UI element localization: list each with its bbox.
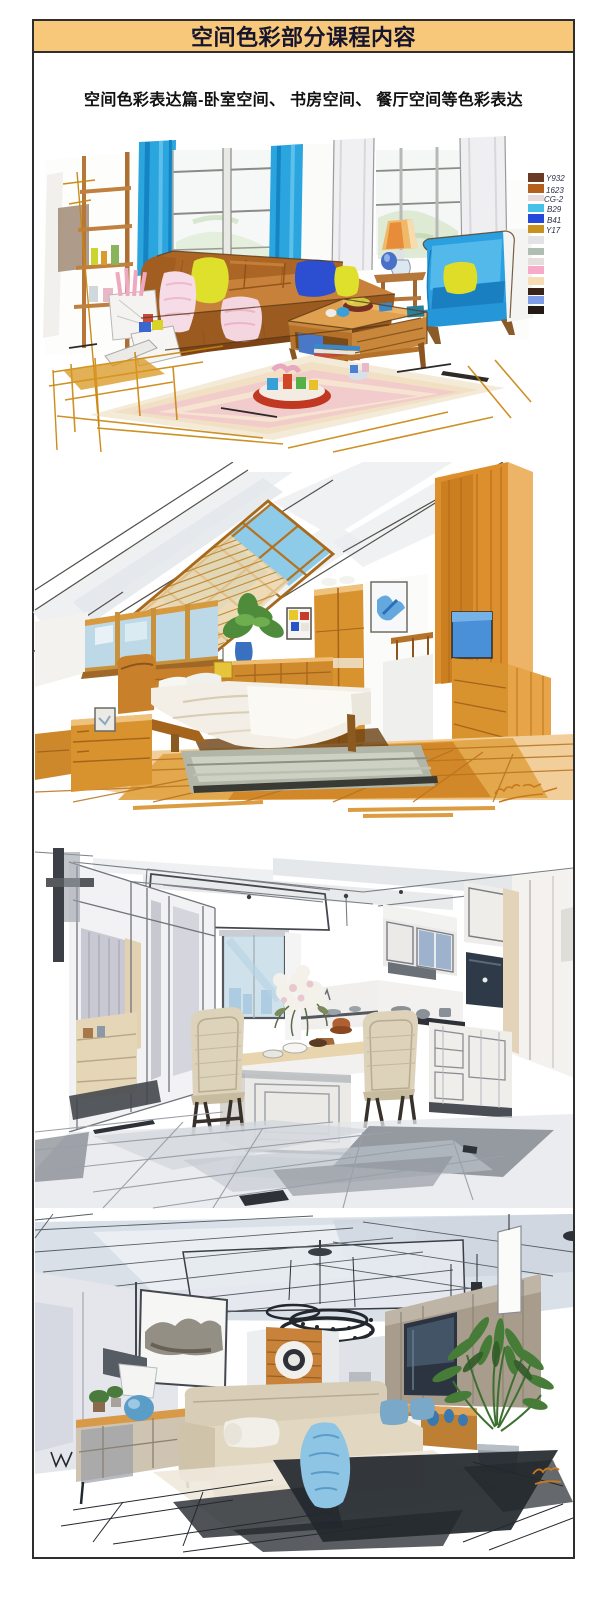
svg-text:B29: B29	[547, 205, 562, 214]
svg-text:Y932: Y932	[546, 174, 565, 183]
svg-text:Y17: Y17	[546, 226, 561, 235]
svg-text:CG-2: CG-2	[544, 195, 564, 204]
svg-text:1623: 1623	[546, 186, 564, 195]
svg-text:B41: B41	[547, 216, 561, 225]
